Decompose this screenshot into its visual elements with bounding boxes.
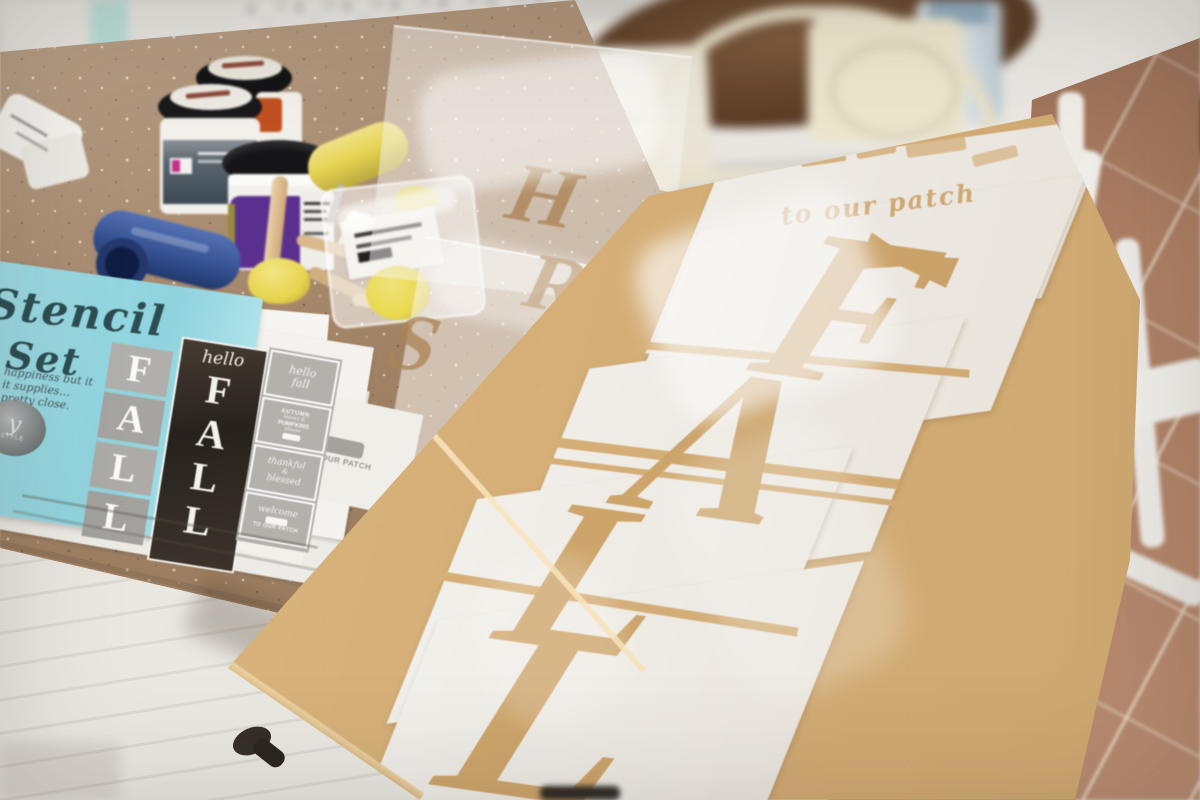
sign-letter-l1: L xyxy=(188,454,221,502)
panel-welcome-l2: TO OUR PATCH xyxy=(252,522,298,536)
sign-hello-text: hello xyxy=(201,347,245,371)
strip-letter-a: A xyxy=(97,392,165,447)
sign-letter-a: A xyxy=(194,410,229,458)
brand-logo-text: STYLE xyxy=(0,433,25,443)
sign-letter-f: F xyxy=(203,367,234,414)
panel-thankful-l3: blessed xyxy=(266,473,301,488)
gap-shadow-bottom xyxy=(540,786,620,800)
brand-logo-monogram: y xyxy=(7,414,23,436)
strip-letter-f: F xyxy=(105,342,173,397)
strip-letter-l1: L xyxy=(89,441,157,496)
sign-letter-l2: L xyxy=(181,497,214,545)
photo-scene: H R S N S TO OUR PATCH Stencil Set happi… xyxy=(0,0,1200,800)
panel-fall: fall xyxy=(291,377,310,391)
